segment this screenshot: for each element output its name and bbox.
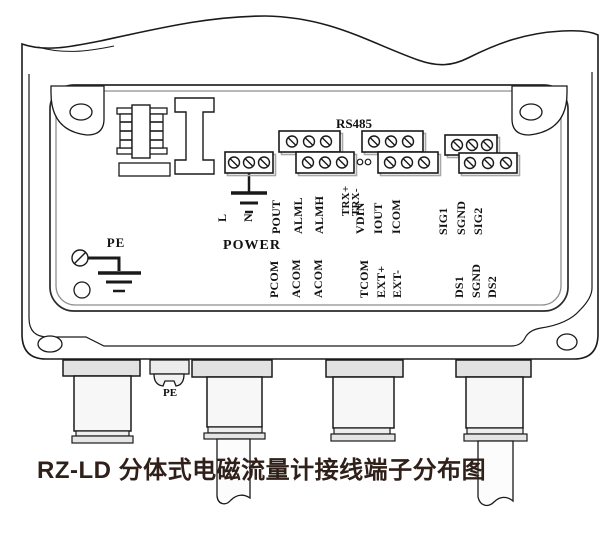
pin-label-N: N — [242, 213, 255, 222]
pin-label-SGND-1: SGND — [455, 201, 468, 235]
cable-gland-1 — [63, 360, 140, 443]
pin-label-SIG2: SIG2 — [472, 208, 485, 235]
screw-hole-bottom-right — [557, 334, 577, 350]
pin-label-IOUT: IOUT — [372, 203, 385, 234]
rs485-caption: RS485 — [326, 116, 382, 132]
pe-hole-icon — [74, 282, 90, 298]
screw-icon — [229, 157, 270, 168]
wiring-diagram: RS485 POWER PE PE L N POUT ALML ALMH PCO… — [0, 0, 614, 534]
screw-icon — [452, 140, 493, 151]
screw-icon — [465, 158, 512, 169]
terminal-block-g1-lower — [296, 152, 357, 176]
pin-label-EXT-minus: EXT- — [391, 270, 404, 298]
pin-label-PCOM: PCOM — [268, 261, 281, 298]
terminal-block-g1-upper — [279, 131, 343, 155]
pin-label-ACOM-2: ACOM — [312, 259, 325, 298]
screw-icon — [369, 136, 414, 147]
screw-hole-top-left — [70, 104, 92, 120]
pe-panel-label: PE — [102, 235, 130, 251]
power-terminal-block — [225, 152, 276, 176]
pin-label-ALMH: ALMH — [313, 196, 326, 234]
pe-stud — [150, 360, 189, 386]
screw-icon — [287, 136, 332, 147]
terminal-block-g3-lower — [459, 153, 520, 176]
pin-label-EXT-plus: EXT+ — [375, 266, 388, 298]
pin-label-TCOM: TCOM — [358, 260, 371, 298]
pin-label-DS2: DS2 — [486, 276, 499, 298]
terminal-block-g2-upper — [362, 131, 426, 155]
pe-stud-label: PE — [158, 387, 182, 399]
pin-label-VDIN: VDIN — [354, 203, 367, 234]
power-caption: POWER — [216, 238, 288, 254]
screw-icon — [385, 157, 430, 168]
screw-icon — [303, 157, 348, 168]
screw-hole-bottom-left — [38, 336, 62, 352]
screw-hole-top-right — [520, 104, 542, 120]
pin-label-SGND-2: SGND — [470, 264, 483, 298]
pin-label-SIG1: SIG1 — [437, 208, 450, 235]
pin-label-POUT: POUT — [270, 200, 283, 234]
pin-label-ACOM-1: ACOM — [290, 259, 303, 298]
terminal-block-g2-lower — [378, 152, 441, 176]
pin-label-DS1: DS1 — [453, 276, 466, 298]
figure-title: RZ-LD 分体式电磁流量计接线端子分布图 — [37, 450, 486, 485]
transformer — [117, 105, 170, 176]
cable-gland-3 — [326, 360, 403, 441]
pin-label-ICOM: ICOM — [390, 199, 403, 234]
pin-label-L: L — [216, 214, 229, 222]
pin-label-ALML: ALML — [292, 197, 305, 234]
